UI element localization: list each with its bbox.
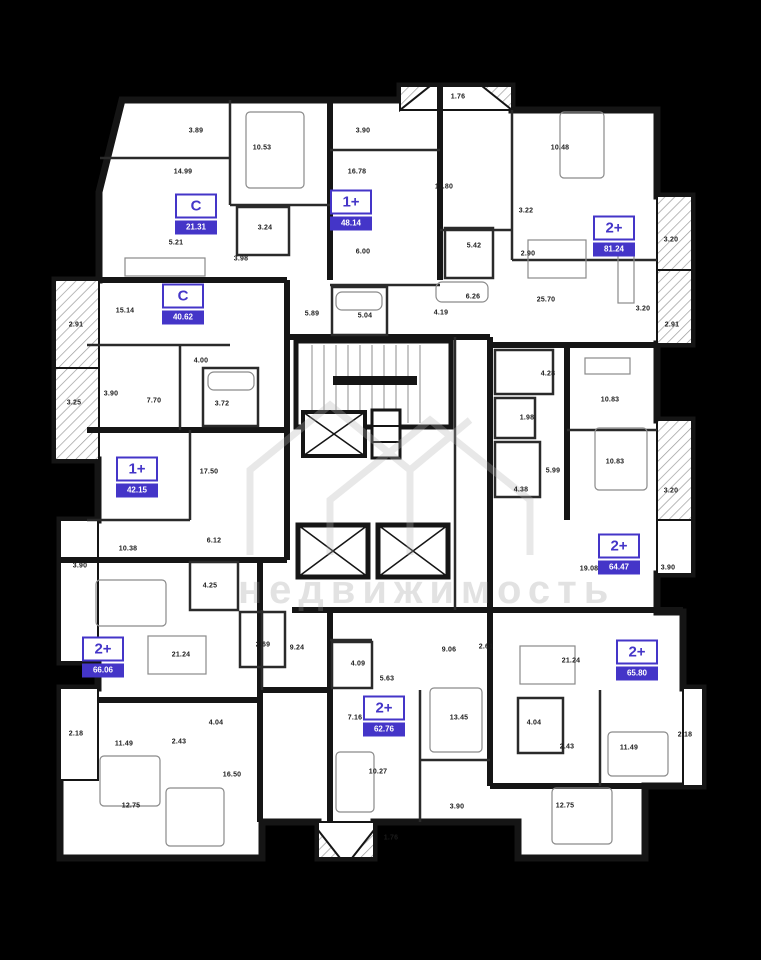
room-area-label: 2.18: [69, 731, 83, 738]
floor-plan: недвижимость 3.8910.5314.993.245.213.983…: [0, 0, 761, 960]
room-area-label: 7.70: [147, 398, 161, 405]
apartment-badge[interactable]: C 21.31: [175, 194, 217, 235]
room-area-label: 1.76: [384, 835, 398, 842]
room-area-label: 6.26: [466, 294, 480, 301]
room-area-label: 10.53: [253, 145, 272, 152]
room-area-label: 9.24: [290, 645, 304, 652]
labels-layer: 3.8910.5314.993.245.213.983.9016.786.005…: [0, 0, 761, 960]
apartment-type: 2+: [593, 216, 635, 241]
apartment-badge[interactable]: 2+ 81.24: [593, 216, 635, 257]
room-area-label: 12.75: [122, 803, 141, 810]
room-area-label: 5.89: [305, 311, 319, 318]
room-area-label: 3.24: [258, 225, 272, 232]
room-area-label: 2.91: [69, 322, 83, 329]
apartment-type: 1+: [330, 190, 372, 215]
apartment-badge[interactable]: 2+ 62.76: [363, 696, 405, 737]
room-area-label: 4.28: [541, 371, 555, 378]
room-area-label: 13.45: [450, 715, 469, 722]
room-area-label: 1.98: [520, 415, 534, 422]
apartment-badge[interactable]: 2+ 65.80: [616, 640, 658, 681]
room-area-label: 10.83: [606, 459, 625, 466]
room-area-label: 3.22: [519, 208, 533, 215]
room-area-label: 3.90: [104, 391, 118, 398]
room-area-label: 5.63: [380, 676, 394, 683]
room-area-label: 2.43: [172, 739, 186, 746]
room-area-label: 15.14: [116, 308, 135, 315]
room-area-label: 2.18: [678, 732, 692, 739]
apartment-area: 65.80: [616, 667, 658, 681]
room-area-label: 11.80: [435, 184, 453, 191]
apartment-type: 2+: [616, 640, 658, 665]
room-area-label: 21.24: [172, 652, 191, 659]
room-area-label: 10.48: [551, 145, 570, 152]
room-area-label: 3.20: [664, 488, 678, 495]
apartment-type: C: [175, 194, 217, 219]
room-area-label: 6.12: [207, 538, 221, 545]
room-area-label: 5.42: [467, 243, 481, 250]
room-area-label: 5.21: [169, 240, 183, 247]
room-area-label: 4.04: [527, 720, 541, 727]
apartment-type: 2+: [82, 637, 124, 662]
room-area-label: 4.00: [194, 358, 208, 365]
apartment-area: 48.14: [330, 217, 372, 231]
apartment-area: 62.76: [363, 723, 405, 737]
room-area-label: 3.90: [661, 565, 675, 572]
room-area-label: 17.50: [200, 469, 219, 476]
apartment-area: 81.24: [593, 243, 635, 257]
room-area-label: 4.04: [209, 720, 223, 727]
room-area-label: 12.75: [556, 803, 575, 810]
room-area-label: 19.08: [580, 566, 599, 573]
apartment-area: 21.31: [175, 221, 217, 235]
room-area-label: 10.27: [369, 769, 388, 776]
room-area-label: 2.90: [521, 251, 535, 258]
apartment-area: 40.62: [162, 311, 204, 325]
room-area-label: 2.91: [665, 322, 679, 329]
room-area-label: 3.89: [189, 128, 203, 135]
room-area-label: 2.61: [479, 644, 493, 651]
room-area-label: 3.20: [664, 237, 678, 244]
apartment-badge[interactable]: 2+ 66.06: [82, 637, 124, 678]
room-area-label: 5.04: [358, 313, 372, 320]
room-area-label: 11.49: [115, 741, 133, 748]
room-area-label: 2.43: [560, 744, 574, 751]
room-area-label: 14.99: [174, 169, 193, 176]
room-area-label: 3.72: [215, 401, 229, 408]
room-area-label: 10.83: [601, 397, 620, 404]
apartment-type: 2+: [363, 696, 405, 721]
apartment-area: 66.06: [82, 664, 124, 678]
apartment-badge[interactable]: 2+ 64.47: [598, 534, 640, 575]
apartment-type: 1+: [116, 457, 158, 482]
room-area-label: 3.25: [67, 400, 81, 407]
apartment-badge[interactable]: C 40.62: [162, 284, 204, 325]
room-area-label: 7.16: [348, 715, 362, 722]
apartment-type: 2+: [598, 534, 640, 559]
apartment-area: 64.47: [598, 561, 640, 575]
room-area-label: 16.78: [348, 169, 367, 176]
room-area-label: 11.49: [620, 745, 638, 752]
room-area-label: 9.06: [442, 647, 456, 654]
room-area-label: 1.76: [451, 94, 465, 101]
room-area-label: 25.70: [537, 297, 556, 304]
room-area-label: 10.38: [119, 546, 138, 553]
room-area-label: 4.38: [514, 487, 528, 494]
room-area-label: 3.90: [356, 128, 370, 135]
room-area-label: 5.99: [546, 468, 560, 475]
room-area-label: 3.90: [73, 563, 87, 570]
room-area-label: 3.90: [450, 804, 464, 811]
apartment-type: C: [162, 284, 204, 309]
apartment-badge[interactable]: 1+ 48.14: [330, 190, 372, 231]
room-area-label: 16.50: [223, 772, 242, 779]
room-area-label: 2.69: [256, 642, 270, 649]
room-area-label: 4.09: [351, 661, 365, 668]
room-area-label: 21.24: [562, 658, 581, 665]
room-area-label: 6.00: [356, 249, 370, 256]
room-area-label: 3.98: [234, 256, 248, 263]
room-area-label: 4.25: [203, 583, 217, 590]
room-area-label: 3.20: [636, 306, 650, 313]
apartment-area: 42.15: [116, 484, 158, 498]
apartment-badge[interactable]: 1+ 42.15: [116, 457, 158, 498]
room-area-label: 4.19: [434, 310, 448, 317]
